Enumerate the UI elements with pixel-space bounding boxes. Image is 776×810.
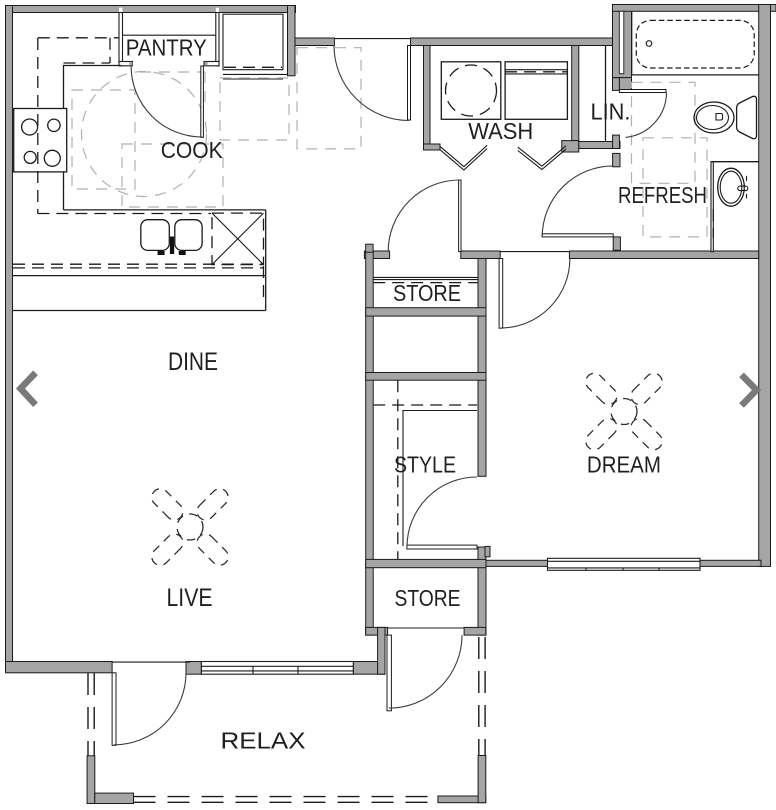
svg-text:DREAM: DREAM — [587, 452, 661, 478]
svg-text:STORE: STORE — [393, 280, 461, 306]
svg-text:COOK: COOK — [161, 137, 224, 163]
svg-text:STYLE: STYLE — [394, 452, 456, 478]
svg-text:REFRESH: REFRESH — [618, 182, 707, 208]
svg-text:LIVE: LIVE — [167, 584, 213, 612]
svg-text:DINE: DINE — [168, 348, 218, 376]
svg-text:RELAX: RELAX — [221, 728, 306, 754]
svg-text:WASH: WASH — [468, 118, 533, 144]
svg-text:LIN.: LIN. — [591, 99, 631, 125]
svg-text:STORE: STORE — [395, 585, 461, 611]
svg-text:PANTRY: PANTRY — [126, 35, 207, 61]
